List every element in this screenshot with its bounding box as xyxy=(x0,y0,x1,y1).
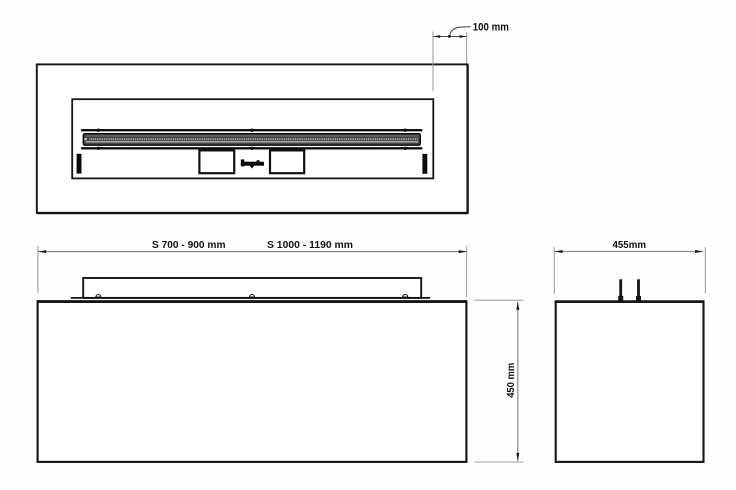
svg-text:100 mm: 100 mm xyxy=(473,21,509,33)
svg-text:450 mm: 450 mm xyxy=(506,363,517,398)
svg-text:S 1000 - 1190 mm: S 1000 - 1190 mm xyxy=(267,240,353,251)
svg-text:455mm: 455mm xyxy=(613,240,647,251)
svg-text:S 700 - 900 mm: S 700 - 900 mm xyxy=(152,240,226,251)
